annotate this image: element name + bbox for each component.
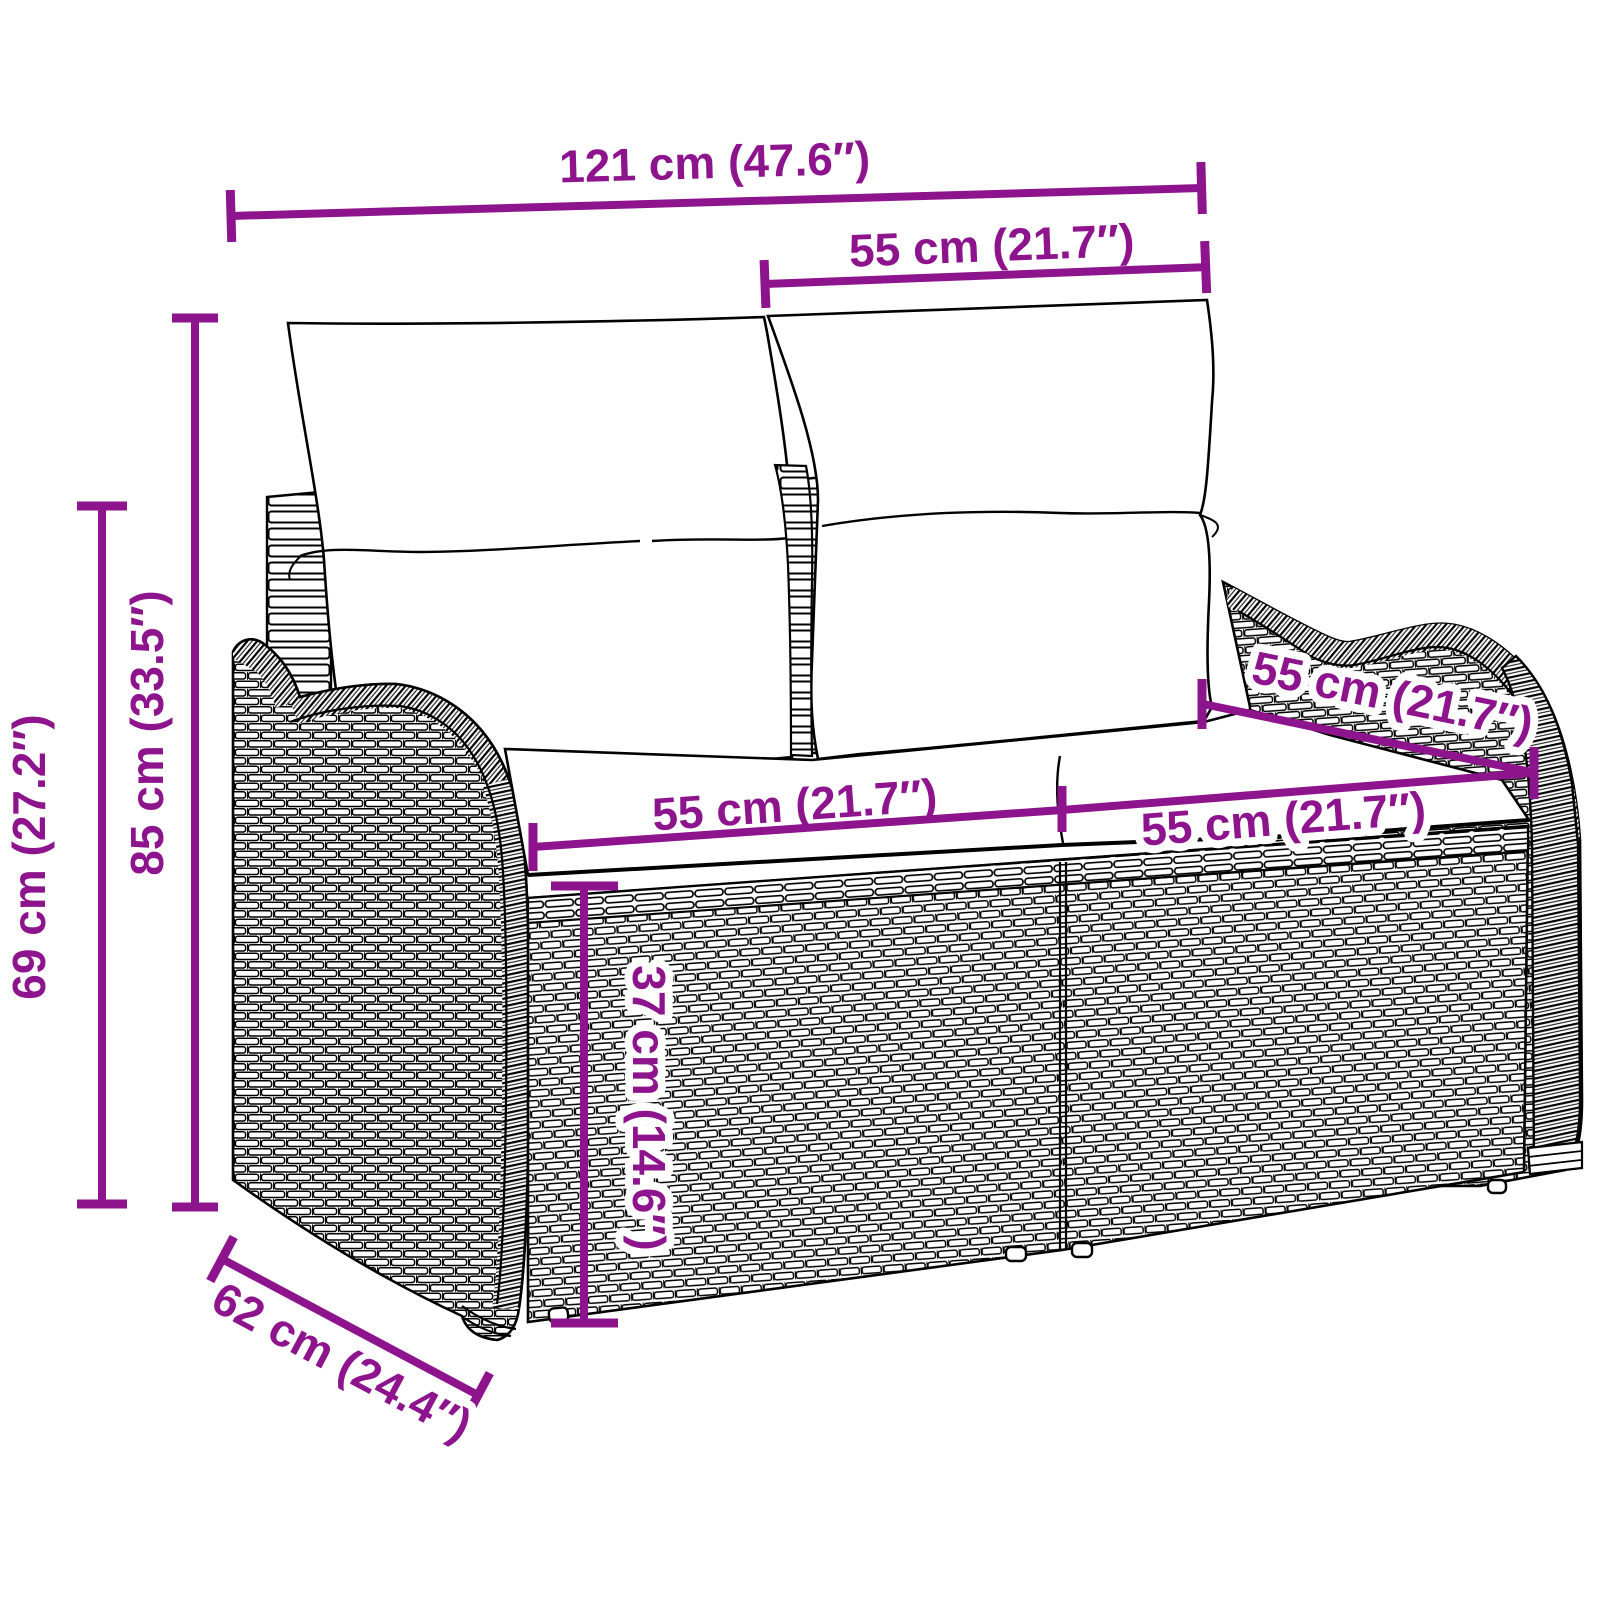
svg-text:55 cm (21.7″): 55 cm (21.7″) xyxy=(848,214,1135,277)
svg-text:85 cm (33.5″): 85 cm (33.5″) xyxy=(121,590,173,875)
svg-text:69 cm (27.2″): 69 cm (27.2″) xyxy=(3,714,55,999)
svg-text:37 cm (14.6″): 37 cm (14.6″) xyxy=(623,965,675,1250)
svg-text:121 cm (47.6″): 121 cm (47.6″) xyxy=(558,132,870,193)
